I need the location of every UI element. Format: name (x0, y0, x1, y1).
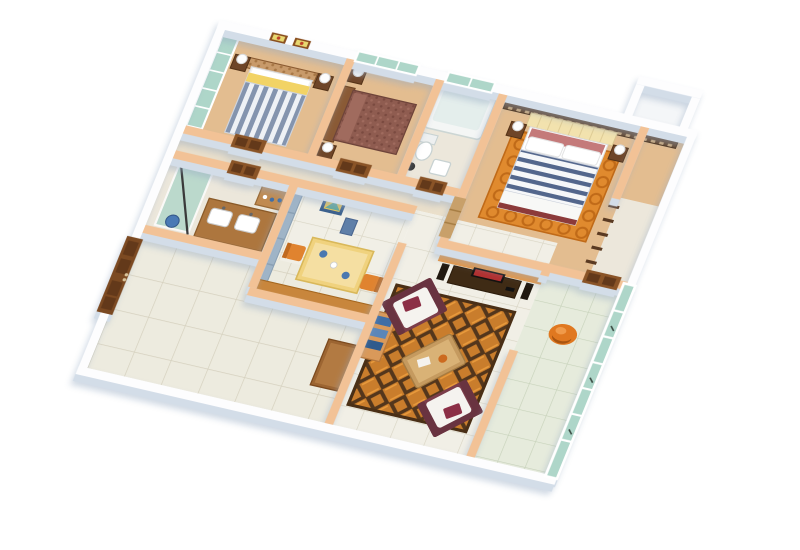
floor-plan-canvas (0, 0, 800, 550)
isometric-apartment (71, 0, 714, 485)
floor-plan-render (0, 0, 800, 550)
